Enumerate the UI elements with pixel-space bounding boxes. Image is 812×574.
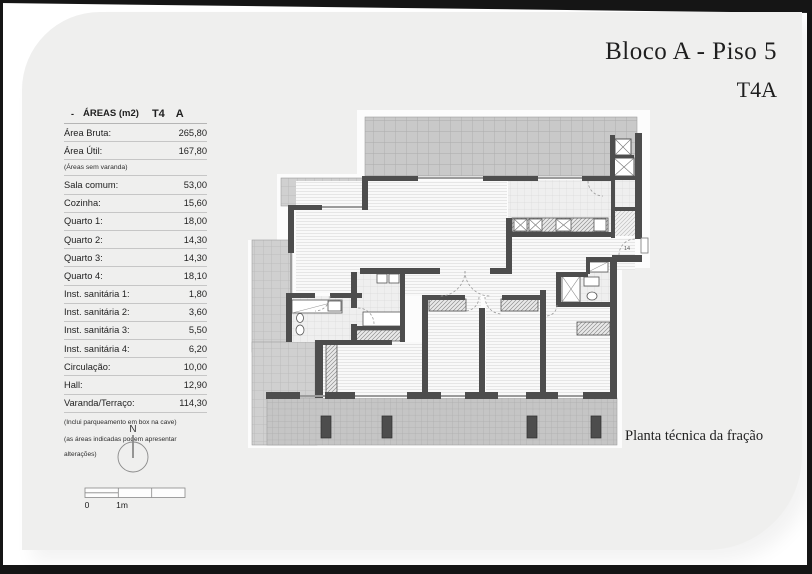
wardrobe-bedroom2 [429, 299, 466, 311]
scanned-floorplan-page: { "header": { "title": "Bloco A - Piso 5… [0, 0, 812, 574]
bedroom4-floor [546, 305, 612, 398]
sink-bathroom2a [377, 274, 387, 283]
plan-caption: Planta técnica da fração [625, 428, 763, 445]
toilet-bathroom1 [296, 325, 304, 335]
bathtub-bathroom2 [363, 312, 401, 326]
terrace-bottom [267, 398, 617, 445]
closet-hatch [356, 330, 402, 341]
bathroom4-floor [613, 180, 637, 207]
sink-bathroom3 [584, 277, 599, 286]
floor-plan-drawing: 14 N 0 1m [0, 0, 812, 574]
scale-zero-label: 0 [85, 500, 90, 510]
wardrobe-bedroom1 [326, 344, 337, 396]
entry-door-label: 14 [624, 246, 630, 252]
laundry-floor [615, 210, 637, 236]
scale-bar: 0 1m [85, 488, 185, 510]
north-label: N [129, 424, 136, 435]
sink-bathroom2b [389, 274, 399, 283]
wardrobe-bedroom4 [577, 322, 610, 335]
room-floors [288, 180, 637, 398]
toilet-bathroom3 [587, 292, 597, 300]
scale-one-label: 1m [116, 500, 128, 510]
north-compass: N [118, 424, 148, 472]
wardrobe-bedroom3 [501, 299, 538, 311]
entry-door-leaf [641, 238, 648, 253]
sink-bathroom1 [328, 301, 341, 311]
terrace-top [365, 117, 637, 176]
bidet-bathroom1 [297, 314, 304, 323]
